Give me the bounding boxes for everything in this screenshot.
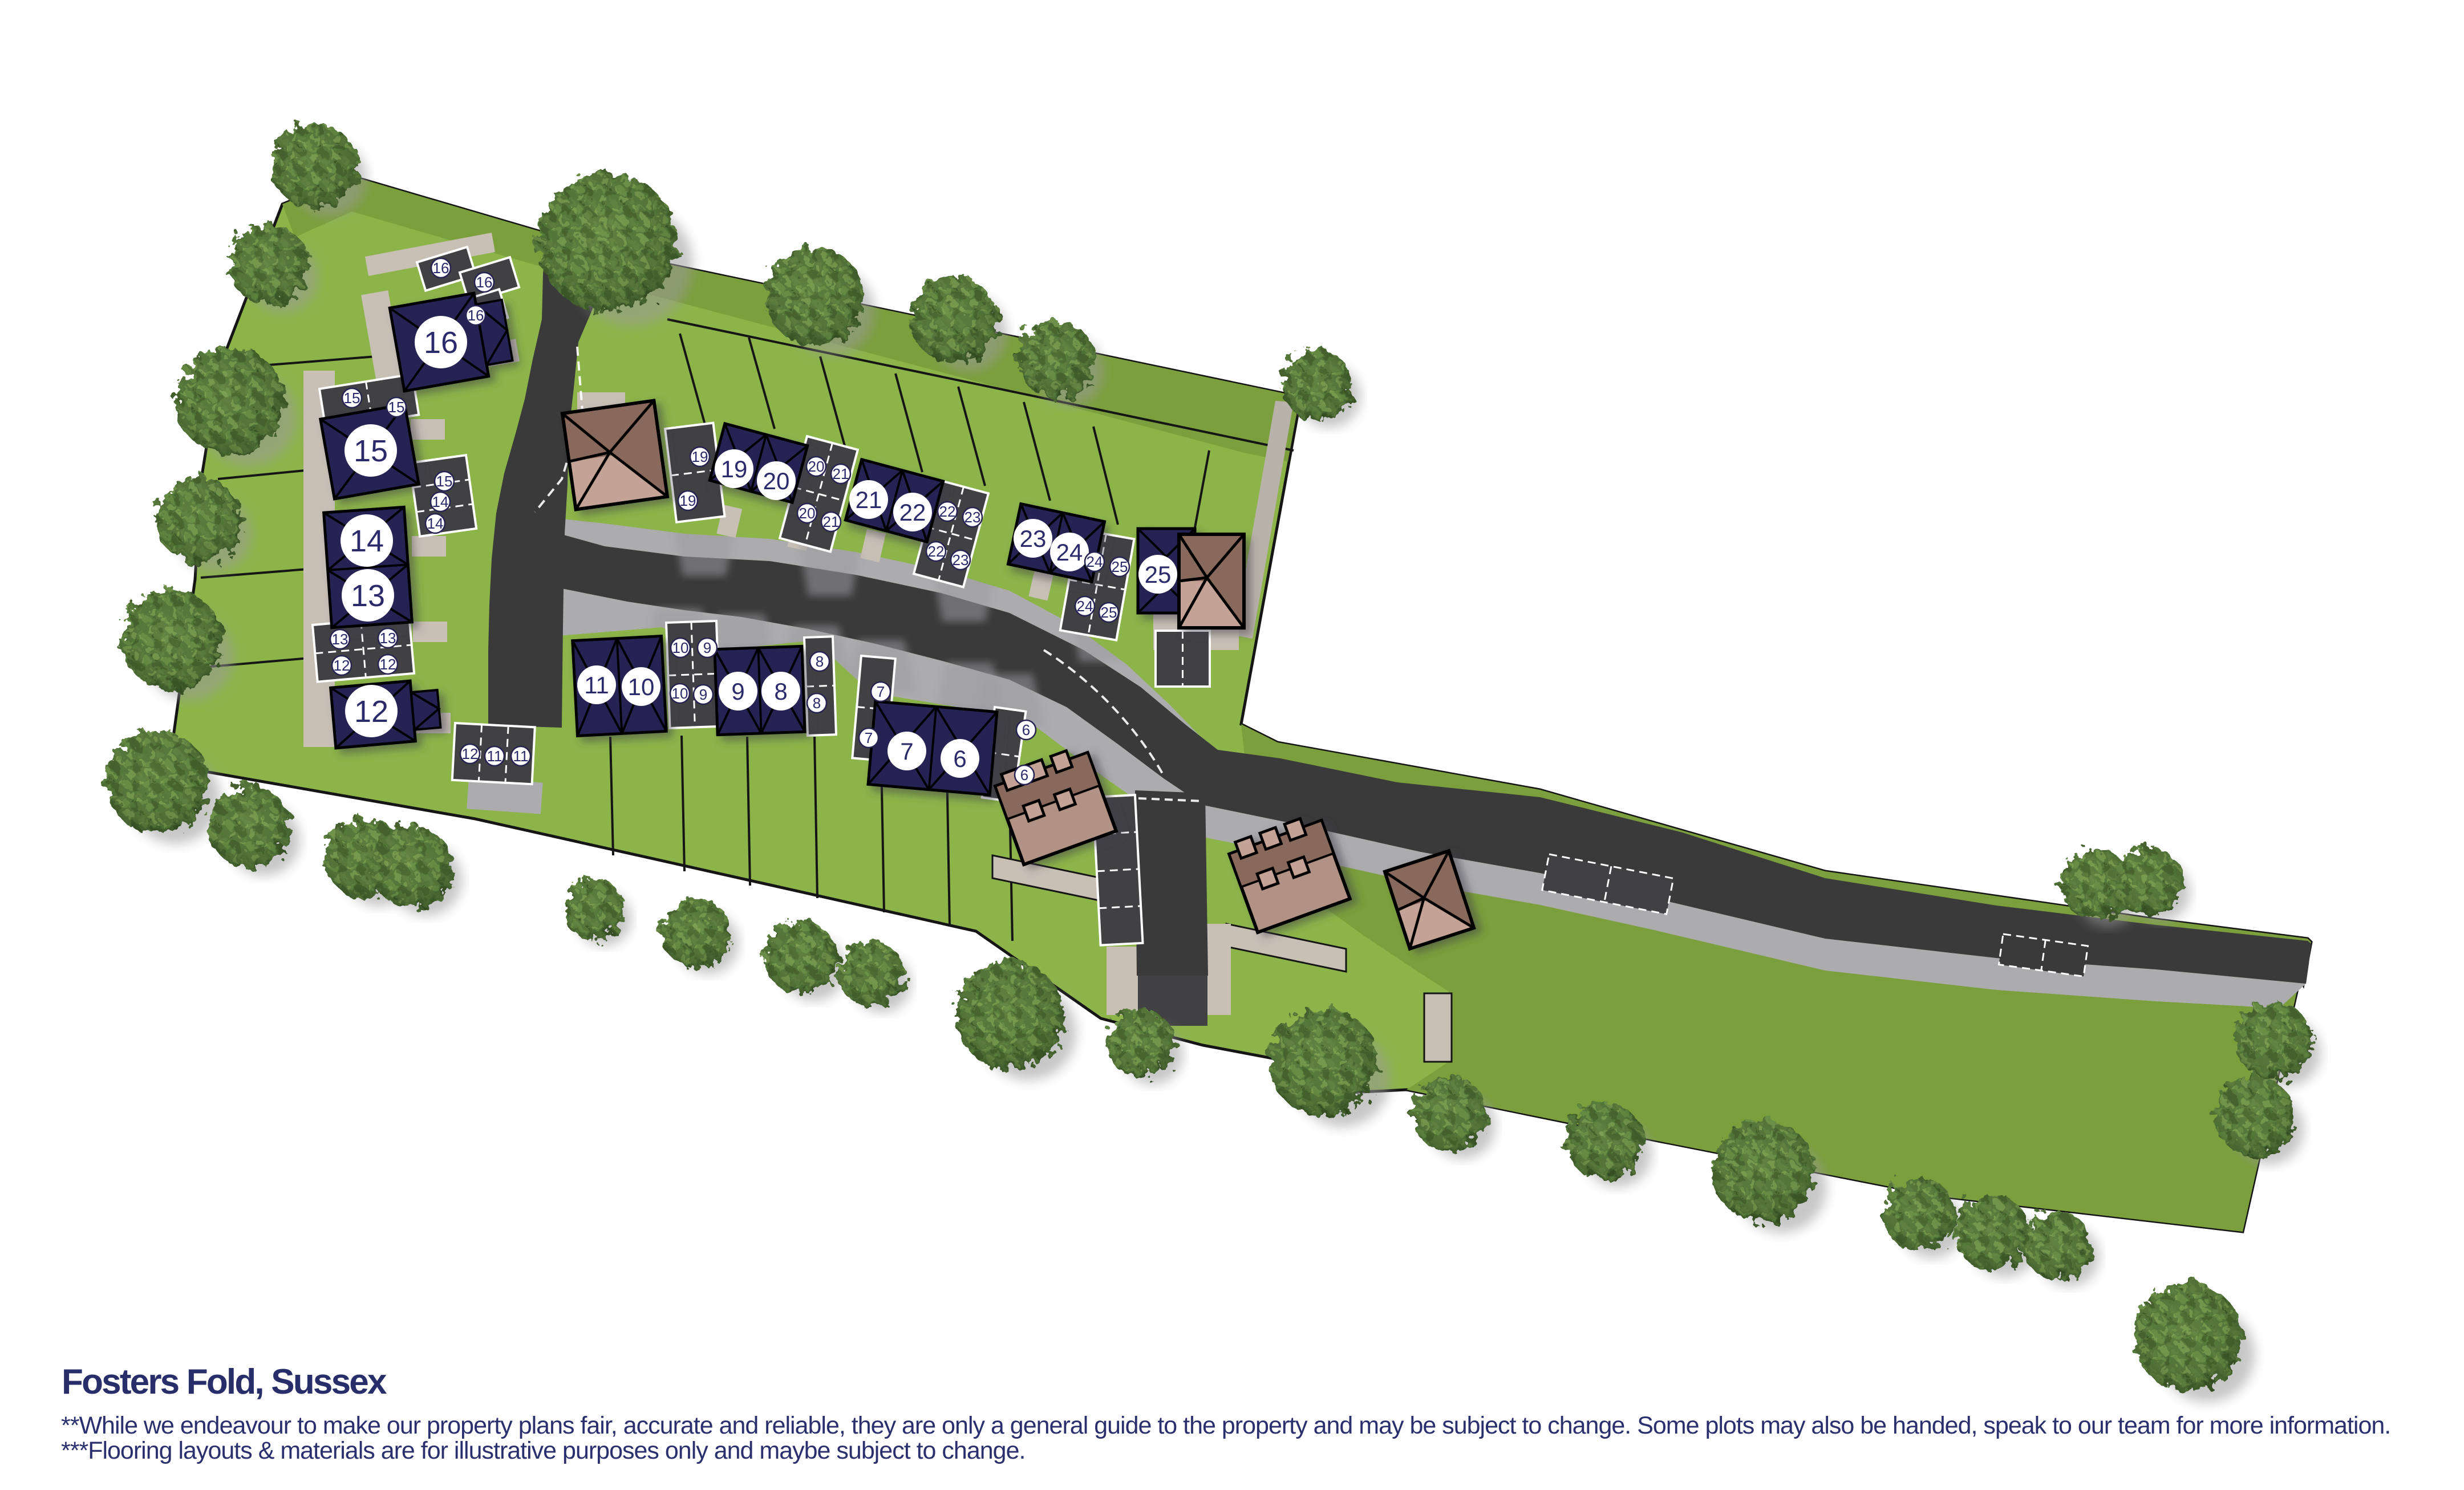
svg-text:19: 19 [680,492,696,509]
svg-text:16: 16 [424,326,458,360]
svg-text:24: 24 [1077,598,1093,615]
svg-text:10: 10 [628,673,655,700]
svg-text:16: 16 [476,274,493,291]
svg-text:23: 23 [953,551,969,569]
svg-text:16: 16 [468,307,484,324]
svg-text:22: 22 [899,499,926,526]
svg-text:21: 21 [856,486,882,513]
svg-text:7: 7 [877,683,885,700]
svg-text:6: 6 [953,745,966,772]
svg-text:11: 11 [487,748,502,765]
svg-text:23: 23 [964,509,981,526]
svg-text:20: 20 [799,505,816,522]
svg-text:24: 24 [1087,553,1103,570]
svg-text:23: 23 [1020,525,1047,552]
svg-text:19: 19 [721,456,748,482]
svg-text:15: 15 [344,389,360,407]
svg-text:6: 6 [1022,721,1030,738]
svg-text:14: 14 [350,524,384,558]
svg-text:15: 15 [388,399,405,416]
svg-text:15: 15 [436,473,453,490]
svg-text:25: 25 [1145,561,1172,588]
svg-text:14: 14 [432,493,449,510]
svg-text:21: 21 [823,513,840,530]
svg-text:11: 11 [513,748,529,765]
svg-text:10: 10 [672,685,688,702]
svg-text:12: 12 [334,657,350,674]
svg-text:16: 16 [433,259,449,277]
svg-text:13: 13 [380,630,396,647]
svg-text:8: 8 [774,678,787,705]
svg-text:15: 15 [354,434,388,468]
svg-text:13: 13 [332,631,348,648]
svg-text:7: 7 [900,738,913,765]
svg-text:8: 8 [813,695,821,712]
svg-text:22: 22 [939,503,956,520]
svg-text:21: 21 [833,465,849,482]
svg-text:20: 20 [808,458,825,475]
svg-text:10: 10 [672,639,689,656]
svg-text:9: 9 [699,686,707,703]
svg-text:9: 9 [703,639,711,656]
svg-text:12: 12 [380,656,396,673]
svg-text:12: 12 [354,695,388,729]
svg-text:19: 19 [692,448,708,465]
svg-text:8: 8 [816,653,824,670]
svg-text:7: 7 [865,729,873,746]
svg-text:9: 9 [731,678,744,705]
svg-text:14: 14 [427,515,444,532]
svg-text:25: 25 [1101,604,1117,621]
svg-text:12: 12 [462,745,479,762]
svg-text:6: 6 [1020,766,1028,783]
svg-text:22: 22 [928,543,945,560]
svg-text:20: 20 [763,468,790,494]
svg-text:13: 13 [351,579,385,613]
svg-text:24: 24 [1056,539,1083,566]
svg-text:25: 25 [1112,558,1128,575]
svg-text:11: 11 [584,672,609,699]
